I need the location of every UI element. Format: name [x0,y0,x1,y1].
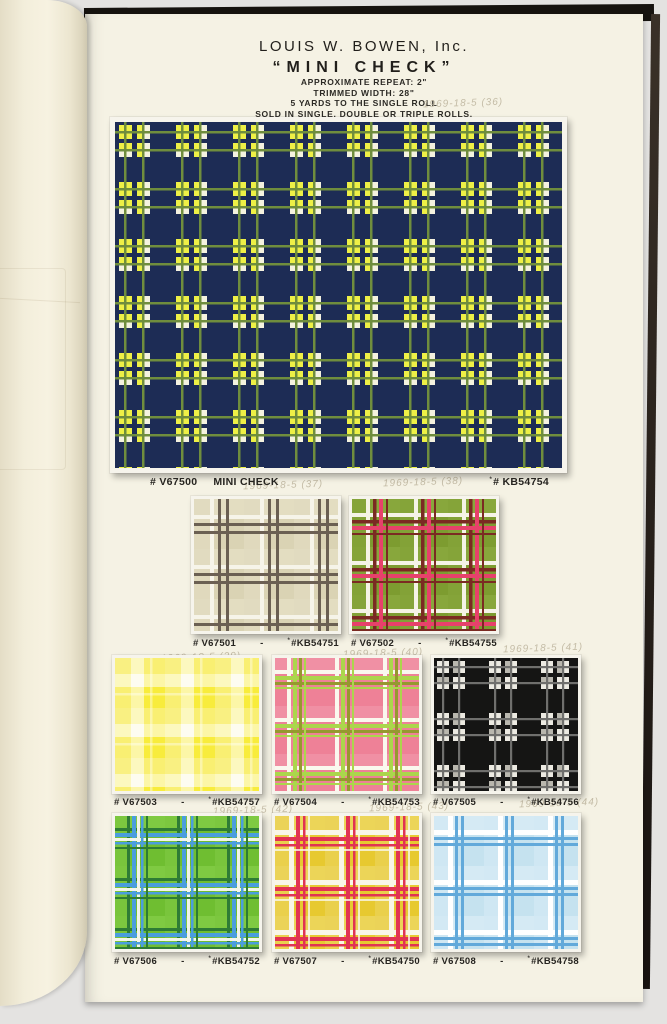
kb-number: #KB54756 [531,797,579,808]
kb-mark: * [490,477,493,483]
book-cover-right-edge [641,14,660,989]
plaid-pattern-v67500 [115,122,562,468]
swatch-v67508 [431,813,581,952]
company-name: LOUIS W. BOWEN, Inc. [85,38,643,55]
plaid-pattern-v67503 [115,658,259,791]
separator: - [500,797,503,808]
separator: - [181,797,184,808]
v-number: # V67500 [150,476,197,488]
spec-width: TRIMMED WIDTH: 28" [85,88,643,99]
pattern-name: MINI CHECK [213,476,278,488]
label-row-v67502: # V67502 - *#KB54755 [351,638,497,649]
label-row-v67506: # V67506 - *#KB54752 [114,956,260,967]
kb-number: #KB54753 [372,797,420,808]
kb-mark: * [446,638,449,644]
v-number: # V67507 [274,956,317,967]
plaid-pattern-v67501 [194,499,338,631]
kb-mark: * [369,956,372,962]
swatch-v67506 [112,813,262,952]
kb-number: #KB54750 [372,956,420,967]
catalog-page: LOUIS W. BOWEN, Inc. “MINI CHECK” APPROX… [85,14,643,1002]
swatch-v67505 [431,655,581,794]
v-number: # V67501 [193,638,236,649]
kb-mark: * [209,956,212,962]
separator: - [418,638,421,649]
curled-previous-page [0,0,87,1006]
v-number: # V67506 [114,956,157,967]
kb-mark: * [288,638,291,644]
swatch-v67502 [349,496,499,634]
label-row-v67500: # V67500 MINI CHECK *# KB54754 [110,476,567,488]
swatch-v67503 [112,655,262,794]
v-number: # V67502 [351,638,394,649]
label-row-v67507: # V67507 - *#KB54750 [274,956,420,967]
separator: - [341,797,344,808]
kb-number: #KB54755 [449,638,497,649]
v-number: # V67503 [114,797,157,808]
separator: - [181,956,184,967]
plaid-pattern-v67502 [352,499,496,631]
plaid-pattern-v67506 [115,816,259,949]
separator: - [500,956,503,967]
plaid-pattern-v67505 [434,658,578,791]
kb-mark: * [528,956,531,962]
kb-mark: * [528,797,531,803]
v-number: # V67508 [433,956,476,967]
sample-book-photo: LOUIS W. BOWEN, Inc. “MINI CHECK” APPROX… [0,0,667,1024]
plaid-pattern-v67508 [434,816,578,949]
kb-number: #KB54752 [212,956,260,967]
plaid-pattern-v67507 [275,816,419,949]
pencil-note-41: 1969-18-5 (41) [503,642,583,656]
label-row-v67508: # V67508 - *#KB54758 [433,956,579,967]
kb-number: # KB54754 [493,476,549,488]
label-row-v67504: # V67504 - *#KB54753 [274,797,420,808]
v-number: # V67505 [433,797,476,808]
kb-number: #KB54758 [531,956,579,967]
swatch-v67504 [272,655,422,794]
swatch-v67507 [272,813,422,952]
separator: - [341,956,344,967]
page-header: LOUIS W. BOWEN, Inc. “MINI CHECK” APPROX… [85,38,643,129]
v-number: # V67504 [274,797,317,808]
spec-repeat: APPROXIMATE REPEAT: 2" [85,77,643,88]
label-row-v67503: # V67503 - *#KB54757 [114,797,260,808]
label-row-v67501: # V67501 - *#KB54751 [193,638,339,649]
kb-number: #KB54751 [291,638,339,649]
kb-number: #KB54757 [212,797,260,808]
separator: - [260,638,263,649]
kb-mark: * [209,797,212,803]
swatch-v67501 [191,496,341,634]
spec-yards: 5 YARDS TO THE SINGLE ROLL [85,98,643,109]
plaid-pattern-v67504 [275,658,419,791]
kb-mark: * [369,797,372,803]
page-title: “MINI CHECK” [85,59,643,77]
label-row-v67505: # V67505 - *#KB54756 [433,797,579,808]
swatch-v67500 [110,117,567,473]
